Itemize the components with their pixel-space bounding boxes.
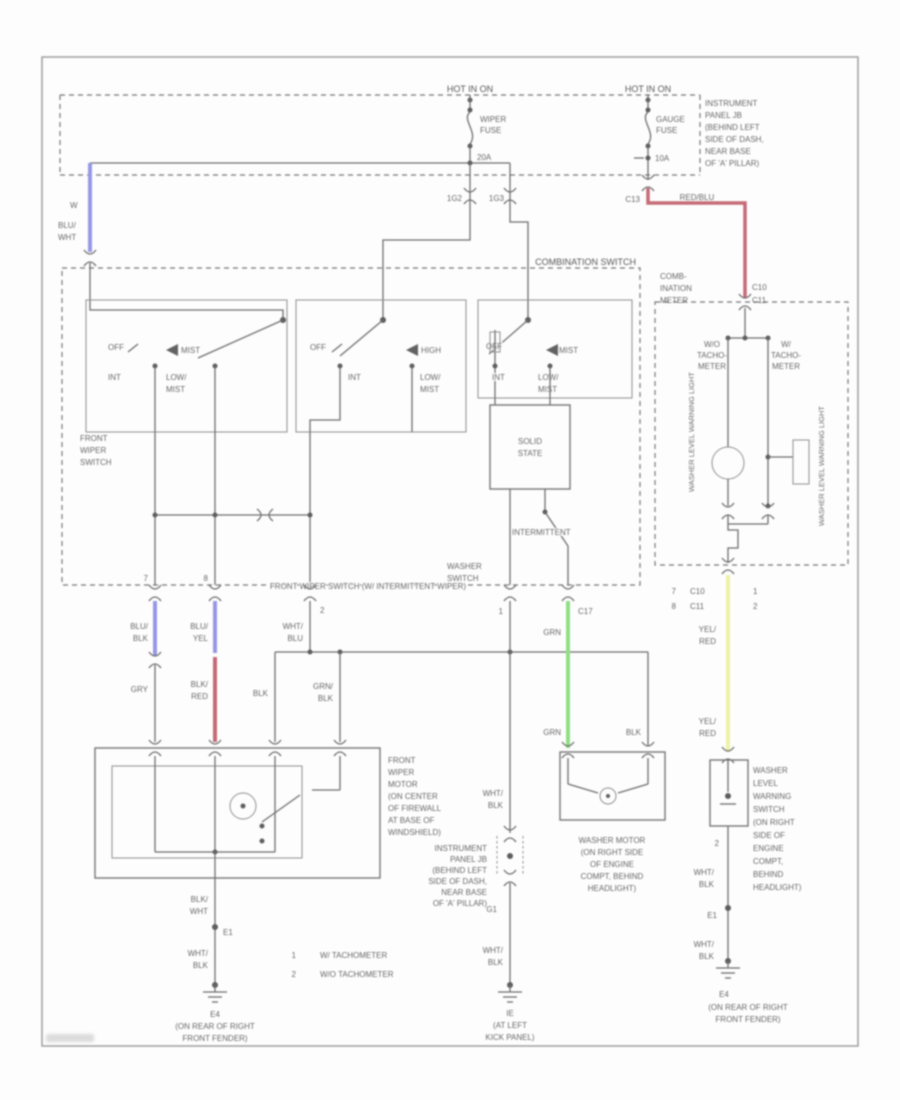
- front-wiper-motor-label: FRONT WIPER MOTOR (ON CENTER OF FIREWALL…: [388, 756, 442, 837]
- blu-wht-feed: W BLU/ WHT: [58, 163, 96, 266]
- grn-blk-label: GRN/: [313, 682, 334, 691]
- wire-mark-w: W: [70, 201, 78, 210]
- motor-inner-box: [112, 766, 302, 858]
- washer-level-switch-box: [710, 760, 748, 826]
- ground-symbol: [716, 958, 740, 978]
- feed-wire-bank2: [383, 163, 470, 320]
- connector-ref-c10: C10: [752, 283, 767, 292]
- red-blu-wire-label: RED/BLU: [680, 193, 715, 202]
- w-tach-branch-label: W/ TACHO- METER: [771, 340, 801, 371]
- combination-switch-title: COMBINATION SWITCH: [535, 257, 636, 267]
- pin-connector: [562, 585, 574, 601]
- wht-blk-label: BLK: [193, 961, 209, 970]
- feed-wire-bank3: [510, 163, 528, 320]
- pin-connector: [209, 585, 221, 601]
- connector-ref-1g2: 1G2: [447, 194, 463, 203]
- washer-motor: WASHER MOTOR (ON RIGHT SIDE OF ENGINE CO…: [560, 742, 665, 893]
- blu-wht-label: WHT: [58, 233, 76, 242]
- int-label: INT: [348, 373, 361, 382]
- blu-yel-label: YEL: [193, 634, 209, 643]
- wht-blk-label: BLK: [488, 958, 504, 967]
- switch-output-wires: BLU/ BLK GRY BLU/ YEL BLK/ RED WHT/ BLU …: [130, 601, 648, 748]
- footnote-number: 1: [292, 951, 297, 960]
- ground-name: IE: [506, 1009, 514, 1018]
- wht-blk-label: WHT/: [188, 949, 209, 958]
- off-label: OFF: [310, 343, 326, 352]
- ground-location: (ON REAR OF RIGHT: [708, 1003, 788, 1012]
- washer-level-switch-label: WASHER LEVEL WARNING SWITCH (ON RIGHT SI…: [753, 766, 802, 892]
- label-line: COMPT, BEHIND: [581, 872, 644, 881]
- low-mist-label: LOW/: [166, 373, 187, 382]
- label-line: SIDE OF: [753, 831, 785, 840]
- label-line: W/O: [704, 340, 720, 349]
- washer-blk-label: BLK: [626, 728, 642, 737]
- page-border: [42, 57, 858, 1046]
- low-mist-label: MIST: [420, 385, 439, 394]
- int-label: INT: [108, 373, 121, 382]
- grn-label: GRN: [543, 628, 561, 637]
- label-line: PANEL JB: [450, 855, 487, 864]
- connector-ref-c11: C11: [752, 296, 767, 305]
- switch-bottom-label: FRONT WIPER SWITCH (W/ INTERMITTENT WIPE…: [270, 582, 466, 591]
- combination-switch: COMBINATION SWITCH FRONT WIPER SWITCH OF…: [62, 257, 640, 616]
- ground-symbol: [498, 982, 522, 1002]
- splice-ref: E1: [223, 928, 233, 937]
- ground-location: (ON REAR OF RIGHT: [175, 1022, 255, 1031]
- blk-red-label: BLK/: [191, 680, 209, 689]
- blu-blk-label: BLK: [133, 634, 149, 643]
- footnote-text: W/O TACHOMETER: [320, 970, 394, 979]
- ground-location: FRONT FENDER): [715, 1015, 781, 1024]
- jb-label-line: (BEHIND LEFT: [705, 123, 760, 132]
- connector-ref-1g3: 1G3: [489, 194, 505, 203]
- high-arrow-icon: [406, 344, 418, 356]
- page-watermark: [46, 1034, 94, 1042]
- footnote-number: 2: [292, 970, 297, 979]
- off-label: OFF: [108, 343, 124, 352]
- label-line: FRONT: [388, 756, 416, 765]
- front-wiper-switch-label: WIPER: [80, 446, 106, 455]
- warning-element: [793, 440, 809, 484]
- solid-state-box: [490, 405, 570, 489]
- hot-in-on-left-label: HOT IN ON: [447, 84, 493, 94]
- instrument-panel-jb-top: HOT IN ON HOT IN ON INSTRUMENT PANEL JB …: [60, 84, 764, 180]
- footnote-ref: 1: [753, 587, 758, 596]
- jb-label-line: OF 'A' PILLAR): [705, 159, 760, 168]
- low-mist-label: MIST: [538, 385, 557, 394]
- label-line: BEHIND: [753, 870, 783, 879]
- blk-red-label: RED: [191, 692, 208, 701]
- label-line: SWITCH: [753, 805, 785, 814]
- pin-number: 7: [144, 574, 149, 583]
- footnote-text: W/ TACHOMETER: [320, 951, 387, 960]
- pin-number: 7: [672, 587, 677, 596]
- washer-motor-label: WASHER MOTOR (ON RIGHT SIDE OF ENGINE CO…: [579, 836, 646, 893]
- label-line: SIDE OF DASH,: [428, 877, 487, 886]
- jb-label-line: SIDE OF DASH,: [705, 135, 764, 144]
- connector-ref: C11: [690, 602, 705, 611]
- connector-ref-c13: C13: [625, 195, 640, 204]
- label-line: (ON CENTER: [388, 792, 438, 801]
- front-wiper-motor: FRONT WIPER MOTOR (ON CENTER OF FIREWALL…: [95, 740, 442, 878]
- front-wiper-switch-label: FRONT: [80, 434, 108, 443]
- wht-blk-label: BLK: [699, 880, 715, 889]
- pin-connector: [149, 585, 161, 601]
- fuse-element: [467, 112, 472, 144]
- wiper-motor-ground-chain: BLK/ WHT E1 WHT/ BLK E4 (ON REAR OF RIGH…: [175, 878, 255, 1043]
- solid-state-label: SOLID: [518, 437, 542, 446]
- switch-arm: [340, 320, 383, 356]
- wo-tach-branch-label: W/O TACHO- METER: [697, 340, 727, 371]
- label-line: AT BASE OF: [388, 816, 434, 825]
- blk-wht-label: WHT: [190, 907, 208, 916]
- yel-red-label: RED: [699, 729, 716, 738]
- pin-number: 2: [715, 839, 720, 848]
- intermittent-label: INTERMITTENT: [512, 528, 571, 537]
- wiper-fuse-label: FUSE: [480, 126, 501, 135]
- yel-red-label: YEL/: [699, 717, 717, 726]
- splice-ref: E1: [707, 911, 717, 920]
- gauge-fuse: GAUGE FUSE 10A: [634, 95, 685, 180]
- label-line: NEAR BASE: [441, 888, 487, 897]
- mid-ground-chain: WHT/ BLK INSTRUMENT PANEL JB (BEHIND LEF…: [428, 601, 535, 1042]
- mist-arrow-icon: [166, 344, 178, 356]
- label-line: WASHER MOTOR: [579, 836, 646, 845]
- combination-meter-title: COMB- INATION METER: [660, 272, 692, 305]
- label-line: OF 'A' PILLAR): [433, 899, 488, 908]
- pin-number: 8: [204, 574, 209, 583]
- combination-meter: COMB- INATION METER C10 C11 W/O TACHO- M…: [655, 272, 848, 611]
- warning-light-bulb: [712, 447, 744, 479]
- wiper-switch-bank2: OFF HIGH INT LOW/ MIST: [310, 317, 441, 585]
- mist-arrow-icon: [546, 344, 558, 356]
- wht-blk-label: WHT/: [483, 946, 504, 955]
- connector-ref-c17: C17: [578, 607, 593, 616]
- ground-symbol: [203, 982, 227, 1002]
- wht-blk-label: WHT/: [694, 868, 715, 877]
- wht-blk-label: BLK: [488, 801, 504, 810]
- mist-label: MIST: [181, 346, 200, 355]
- combination-switch-box: [62, 268, 640, 585]
- pin-connector: [504, 585, 516, 601]
- bank2-output: [310, 366, 340, 585]
- meter-exit-jog: [728, 524, 738, 563]
- label-line: HEADLIGHT): [753, 883, 802, 892]
- low-mist-label: LOW/: [538, 373, 559, 382]
- low-mist-label: LOW/: [420, 373, 441, 382]
- mist-label: MIST: [559, 346, 578, 355]
- wiper-fuse-amps: 20A: [477, 153, 492, 162]
- connector-ref-g1: G1: [486, 905, 497, 914]
- fuse-element: [645, 112, 650, 144]
- gauge-fuse-amps: 10A: [655, 154, 670, 163]
- wiper-fuse-label: WIPER: [480, 115, 506, 124]
- wiper-switch-bank1: OFF MIST INT LOW/ MIST: [108, 317, 286, 585]
- label-line: WIPER: [388, 768, 414, 777]
- red-blu-wire: [648, 188, 745, 298]
- label-line: (ON RIGHT: [753, 818, 795, 827]
- label-line: ENGINE: [753, 844, 784, 853]
- wiring-diagram-page: HOT IN ON HOT IN ON INSTRUMENT PANEL JB …: [0, 0, 900, 1100]
- pin-number: 8: [672, 602, 677, 611]
- cam-switch-arm: [262, 795, 300, 822]
- title-line: COMB-: [660, 272, 687, 281]
- footnote-ref: 2: [753, 602, 758, 611]
- solid-state-label: STATE: [518, 449, 543, 458]
- front-wiper-switch-label: SWITCH: [80, 458, 112, 467]
- washer-level-warning-light-label: WASHER LEVEL WARNING LIGHT: [817, 406, 826, 526]
- jb-mid-label: INSTRUMENT PANEL JB (BEHIND LEFT SIDE OF…: [428, 844, 487, 908]
- connector-ref: C10: [690, 587, 705, 596]
- label-line: WARNING: [753, 792, 791, 801]
- wht-blk-label: WHT/: [694, 940, 715, 949]
- wht-blk-label: WHT/: [483, 789, 504, 798]
- jb-label-line: PANEL JB: [705, 111, 742, 120]
- washer-level-warning-switch: WASHER LEVEL WARNING SWITCH (ON RIGHT SI…: [710, 760, 802, 892]
- meter-connector-rows: 7 C10 1 8 C11 2: [672, 587, 758, 611]
- washer-level-warning-light-label: WASHER LEVEL WARNING LIGHT: [687, 372, 696, 492]
- ground-name: E4: [719, 990, 729, 999]
- label-line: COMPT,: [753, 857, 783, 866]
- ground-location: KICK PANEL): [485, 1033, 535, 1042]
- wiper-fuse: WIPER FUSE 20A: [467, 95, 506, 163]
- label-line: LEVEL: [753, 779, 778, 788]
- gauge-fuse-label: FUSE: [656, 126, 677, 135]
- wiper-feed-wires: 1G2 1G3: [90, 161, 528, 321]
- blk-wht-label: BLK/: [191, 895, 209, 904]
- int-label: INT: [492, 373, 505, 382]
- label-line: TACHO-: [771, 351, 801, 360]
- wht-blu-label: BLU: [287, 634, 303, 643]
- label-line: METER: [698, 362, 726, 371]
- blu-yel-label: BLU/: [190, 622, 209, 631]
- washer-level-chain: YEL/ RED YEL/ RED WASHER LEVEL WARNING S…: [694, 575, 802, 1024]
- label-line: (ON RIGHT SIDE: [581, 848, 644, 857]
- blk-label: BLK: [253, 689, 269, 698]
- label-line: HEADLIGHT): [588, 884, 637, 893]
- footnotes: 1 W/ TACHOMETER 2 W/O TACHOMETER: [292, 951, 394, 979]
- bank1-feed: [90, 263, 283, 320]
- wht-blu-label: WHT/: [283, 622, 304, 631]
- blu-wht-label: BLU/: [58, 221, 77, 230]
- switch-arm: [198, 320, 283, 358]
- label-line: WASHER: [753, 766, 788, 775]
- label-line: W/: [781, 340, 792, 349]
- label-line: MOTOR: [388, 780, 418, 789]
- ground-location: FRONT FENDER): [182, 1034, 248, 1043]
- washer-switch-label: WASHER: [447, 562, 482, 571]
- label-line: METER: [772, 362, 800, 371]
- pin-number: 2: [320, 606, 325, 615]
- grn-blk-label: BLK: [318, 694, 334, 703]
- jb-label-line: INSTRUMENT: [705, 99, 758, 108]
- internal-bus: [153, 509, 313, 521]
- label-line: WINDSHIELD): [388, 828, 441, 837]
- title-line: METER: [660, 296, 688, 305]
- ground-location: (AT LEFT: [493, 1021, 527, 1030]
- wiper-washer-wiring-diagram: HOT IN ON HOT IN ON INSTRUMENT PANEL JB …: [0, 0, 900, 1100]
- gry-label: GRY: [131, 685, 149, 694]
- label-line: OF ENGINE: [590, 860, 634, 869]
- label-line: INSTRUMENT: [435, 844, 488, 853]
- jb-label-line: NEAR BASE: [705, 147, 751, 156]
- blu-blk-label: BLU/: [130, 622, 149, 631]
- high-label: HIGH: [421, 346, 441, 355]
- grn-label: GRN: [543, 728, 561, 737]
- label-line: (BEHIND LEFT: [432, 866, 487, 875]
- title-line: INATION: [660, 284, 692, 293]
- yel-red-label: YEL/: [699, 625, 717, 634]
- label-line: TACHO-: [697, 351, 727, 360]
- gauge-fuse-label: GAUGE: [656, 115, 685, 124]
- low-mist-label: MIST: [166, 385, 185, 394]
- jb-location-label: INSTRUMENT PANEL JB (BEHIND LEFT SIDE OF…: [705, 99, 764, 168]
- bank1-outline: [86, 300, 287, 432]
- wht-blk-label: BLK: [699, 952, 715, 961]
- hot-in-on-right-label: HOT IN ON: [625, 84, 671, 94]
- wiper-switch-bank3: OFF MIST INT LOW/ MIST: [486, 317, 578, 405]
- yel-red-label: RED: [699, 637, 716, 646]
- ground-name: E4: [210, 1010, 220, 1019]
- label-line: OF FIREWALL: [388, 804, 442, 813]
- pin-number: 1: [499, 607, 504, 616]
